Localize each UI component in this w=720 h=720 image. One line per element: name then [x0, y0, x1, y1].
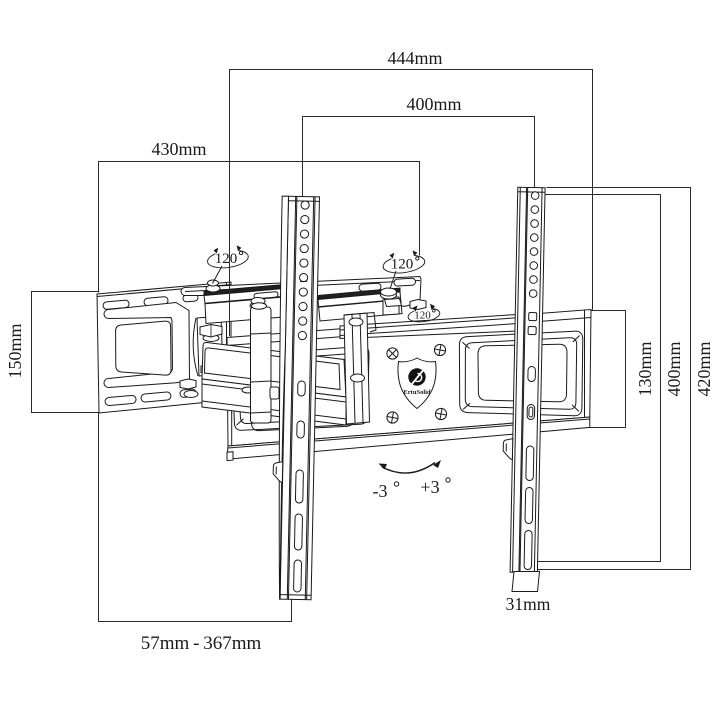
svg-text:150mm: 150mm	[5, 323, 25, 378]
svg-text:57mm - 367mm: 57mm - 367mm	[141, 633, 262, 654]
svg-text:400mm: 400mm	[406, 94, 461, 114]
svg-text:-3: -3	[373, 481, 388, 501]
svg-text:ErtuSolid: ErtuSolid	[403, 389, 430, 396]
svg-text:120: 120	[215, 251, 238, 267]
svg-text:+3: +3	[420, 477, 439, 497]
svg-text:120: 120	[414, 310, 431, 322]
svg-text:120: 120	[391, 257, 414, 273]
svg-text:400mm: 400mm	[664, 341, 684, 396]
svg-text:420mm: 420mm	[694, 341, 714, 396]
svg-text:444mm: 444mm	[387, 48, 442, 68]
svg-text:31mm: 31mm	[506, 594, 551, 614]
svg-text:130mm: 130mm	[635, 341, 655, 396]
svg-text:430mm: 430mm	[151, 139, 206, 159]
